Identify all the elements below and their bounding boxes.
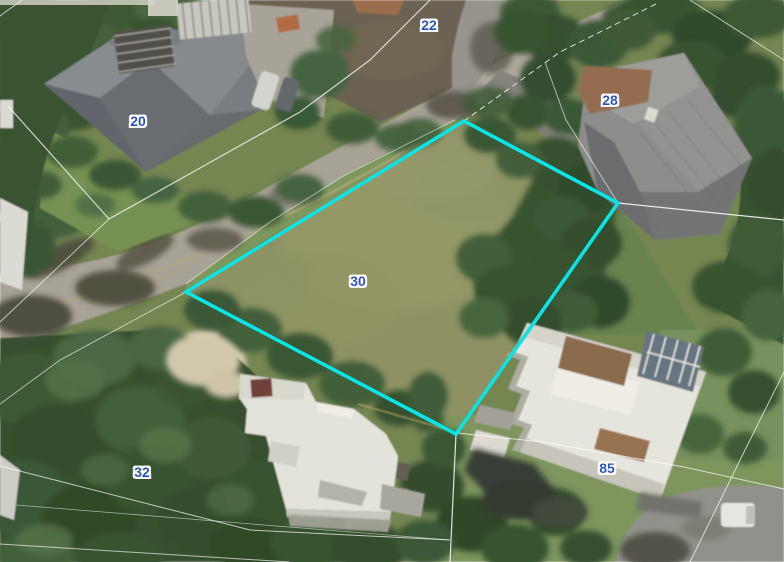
svg-text:28: 28 (602, 92, 618, 108)
svg-text:22: 22 (421, 17, 437, 33)
svg-text:30: 30 (350, 273, 366, 289)
svg-text:20: 20 (130, 113, 146, 129)
svg-text:32: 32 (134, 464, 150, 480)
svg-text:85: 85 (599, 460, 615, 476)
